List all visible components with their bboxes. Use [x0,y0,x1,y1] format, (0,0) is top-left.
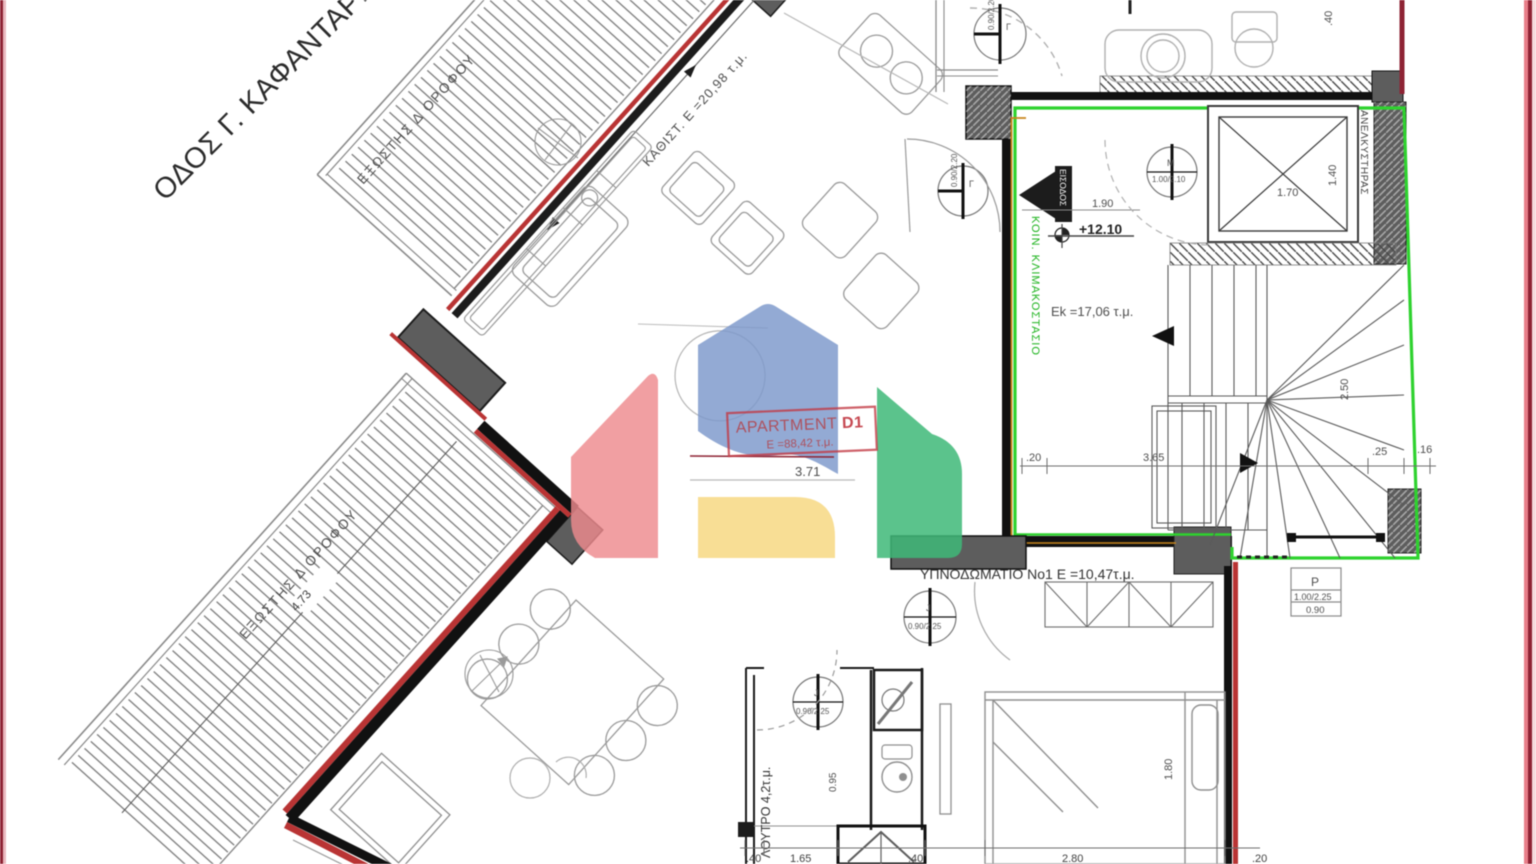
svg-text:0.90/2.20: 0.90/2.20 [987,0,996,30]
svg-text:ΥΠΝΟΔΩΜΑΤΙΟ Νο1 Ε =10,47τ.μ.: ΥΠΝΟΔΩΜΑΤΙΟ Νο1 Ε =10,47τ.μ. [920,566,1135,582]
svg-text:ΑΝΕΛΚΥΣΤΗΡΑΣ: ΑΝΕΛΚΥΣΤΗΡΑΣ [1358,110,1369,195]
svg-text:3.71: 3.71 [795,464,820,479]
svg-text:1.40: 1.40 [1327,165,1339,186]
svg-text:.20: .20 [1026,452,1041,464]
svg-text:.25: .25 [1372,446,1387,458]
svg-text:Ek =17,06 τ.μ.: Ek =17,06 τ.μ. [1051,304,1133,319]
svg-text:ΕΙΣΟΔΟΣ: ΕΙΣΟΔΟΣ [1058,169,1068,206]
svg-text:.40: .40 [1323,11,1335,26]
svg-text:2.50: 2.50 [1339,379,1351,400]
svg-text:1.00/2.25: 1.00/2.25 [1294,592,1332,602]
svg-text:ΚΟΙΝ. ΚΛΙΜΑΚΟΣΤΑΣΙΟ: ΚΟΙΝ. ΚΛΙΜΑΚΟΣΤΑΣΙΟ [1029,216,1041,356]
svg-text:.40: .40 [746,853,761,864]
svg-text:M: M [1167,158,1175,168]
svg-text:ΛΟΥΤΡΟ 4,2τ.μ.: ΛΟΥΤΡΟ 4,2τ.μ. [759,767,773,858]
svg-text:+12.10: +12.10 [1079,221,1122,237]
svg-text:.40: .40 [908,853,923,864]
svg-text:P: P [1311,575,1319,589]
svg-text:1.65: 1.65 [790,853,811,864]
svg-text:J: J [926,603,931,613]
svg-text:.20: .20 [1252,853,1267,864]
svg-text:0.90/2.25: 0.90/2.25 [796,707,830,716]
svg-text:1.70: 1.70 [1277,187,1298,199]
svg-text:0.90: 0.90 [1306,605,1325,616]
svg-text:.16: .16 [1417,444,1432,456]
svg-text:1.00/2.10: 1.00/2.10 [1152,175,1186,184]
svg-text:Γ: Γ [1006,22,1011,32]
svg-text:2.80: 2.80 [1062,853,1083,864]
svg-text:1.80: 1.80 [1163,759,1175,780]
svg-text:J: J [814,688,819,698]
svg-text:0.90/2.20: 0.90/2.20 [950,153,959,187]
svg-text:0.90/2.25: 0.90/2.25 [908,622,942,631]
svg-text:0.95: 0.95 [828,772,839,792]
svg-text:Γ: Γ [969,179,974,189]
svg-text:3.65: 3.65 [1143,452,1164,464]
svg-text:1.90: 1.90 [1092,198,1113,210]
